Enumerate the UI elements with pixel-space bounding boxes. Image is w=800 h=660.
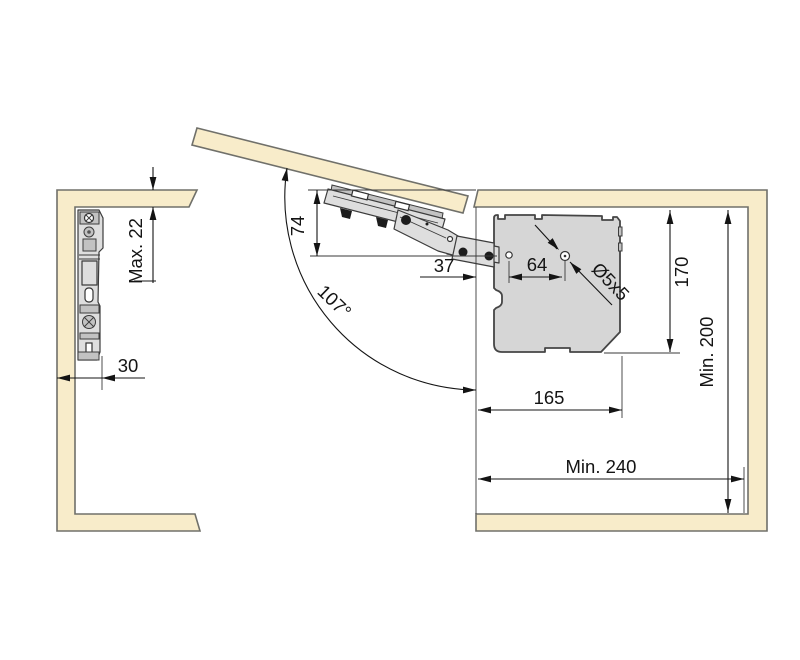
lift-mechanism-front-view bbox=[78, 210, 103, 360]
dim-label-min-200: Min. 200 bbox=[696, 317, 717, 388]
dim-label-74: 74 bbox=[287, 216, 308, 237]
dimension-body-height: 170 bbox=[667, 210, 692, 352]
dim-label-64: 64 bbox=[527, 254, 548, 275]
dim-label-max-22: Max. 22 bbox=[125, 218, 146, 284]
dim-label-170: 170 bbox=[671, 257, 692, 288]
drawing-canvas: 107° Max. 22 30 74 37 64 bbox=[0, 0, 800, 660]
dim-label-angle: 107° bbox=[313, 280, 355, 322]
front-mounting-hole bbox=[506, 252, 512, 258]
link-pivot bbox=[459, 248, 468, 257]
dimension-min-interior-depth: Min. 240 bbox=[478, 456, 744, 482]
dimension-max-panel-thickness: Max. 22 bbox=[125, 167, 156, 284]
dim-label-165: 165 bbox=[534, 387, 565, 408]
dim-label-min-240: Min. 240 bbox=[566, 456, 637, 477]
dim-label-37: 37 bbox=[434, 255, 455, 276]
dimension-body-depth: 165 bbox=[478, 387, 622, 413]
arm-pivot bbox=[401, 215, 411, 225]
dimension-arm-drop: 74 bbox=[287, 190, 320, 256]
dim-label-30: 30 bbox=[118, 355, 139, 376]
dimension-min-interior-height: Min. 200 bbox=[696, 210, 731, 513]
technical-drawing: 107° Max. 22 30 74 37 64 bbox=[0, 0, 800, 660]
